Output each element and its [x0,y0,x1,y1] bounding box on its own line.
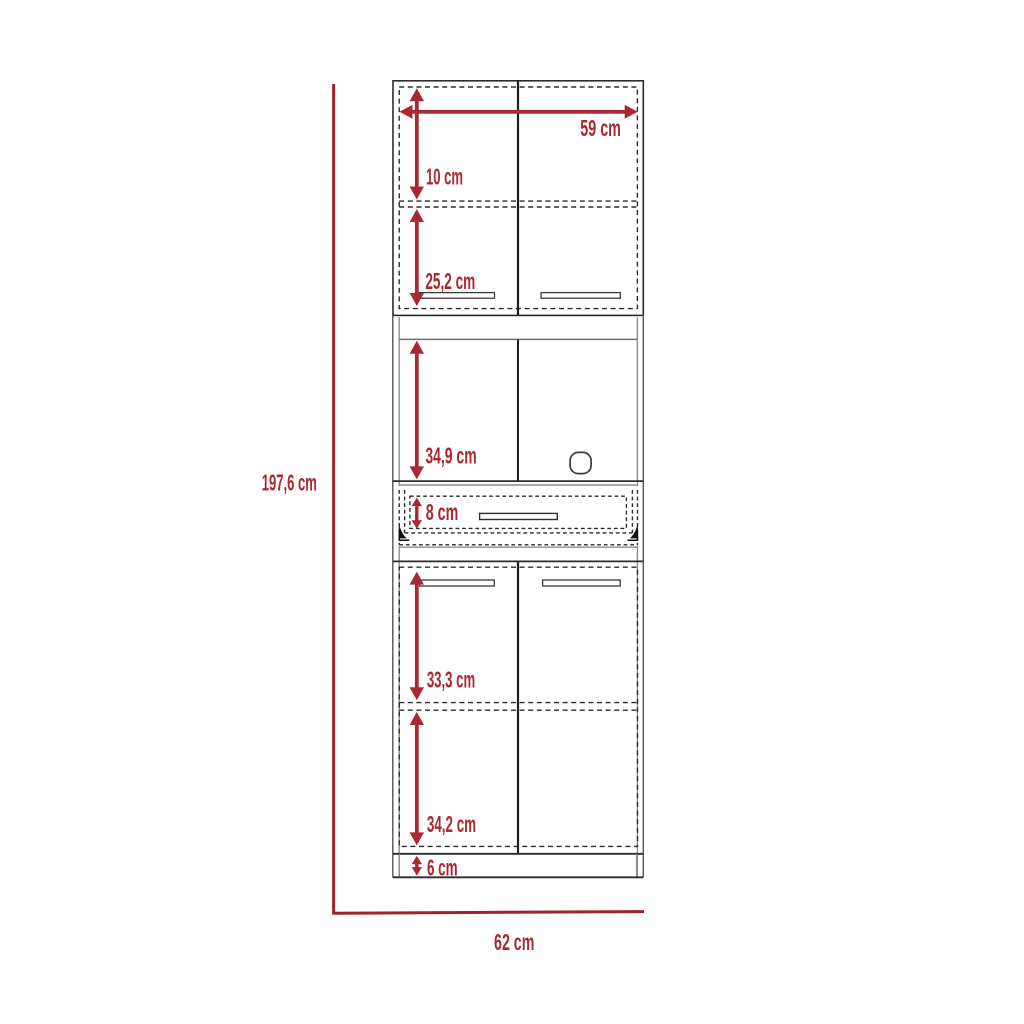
svg-text:25,2 cm: 25,2 cm [425,268,475,294]
svg-text:59 cm: 59 cm [580,115,621,141]
svg-text:197,6 cm: 197,6 cm [262,469,317,495]
svg-text:8 cm: 8 cm [426,499,459,525]
svg-text:62 cm: 62 cm [494,929,534,955]
svg-text:6 cm: 6 cm [427,854,458,880]
svg-text:10 cm: 10 cm [426,164,463,190]
svg-text:34,9 cm: 34,9 cm [425,442,476,468]
svg-text:33,3 cm: 33,3 cm [427,666,475,692]
svg-text:34,2 cm: 34,2 cm [427,811,476,837]
